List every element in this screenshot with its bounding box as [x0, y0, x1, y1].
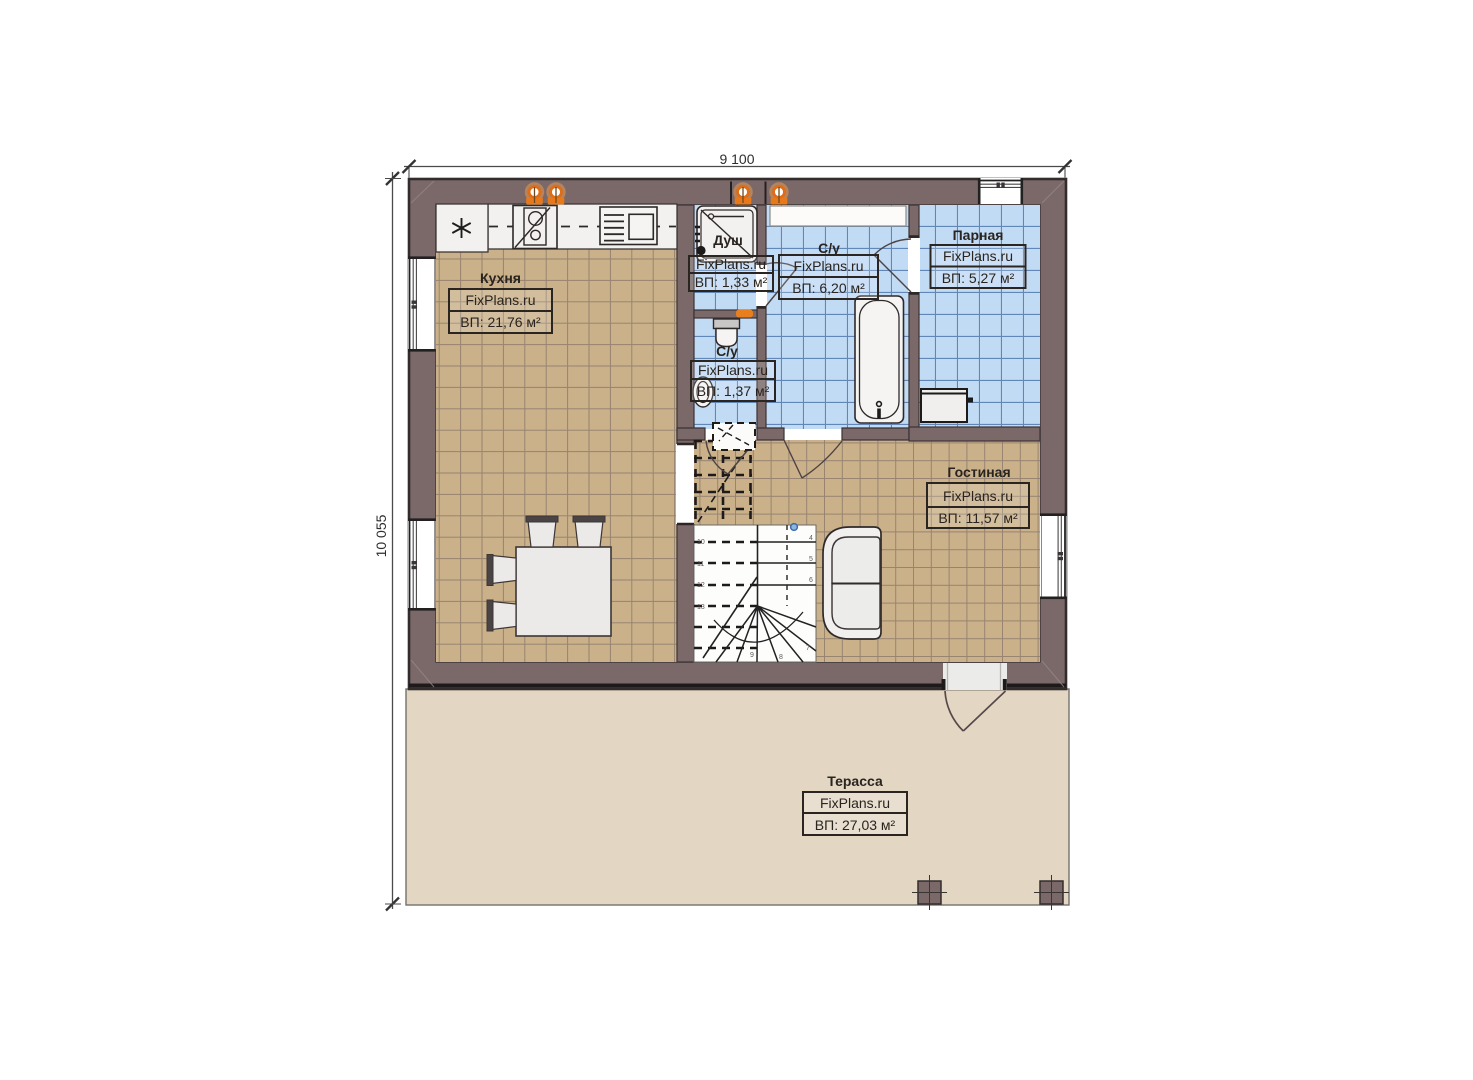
- svg-text:FixPlans.ru: FixPlans.ru: [943, 248, 1013, 264]
- svg-text:10 055: 10 055: [373, 514, 389, 557]
- svg-text:9: 9: [750, 652, 754, 659]
- svg-text:4: 4: [809, 535, 813, 542]
- svg-text:5: 5: [809, 556, 813, 563]
- svg-text:ВП: 1,33 м²: ВП: 1,33 м²: [695, 274, 768, 290]
- svg-text:С/у: С/у: [716, 343, 738, 359]
- svg-text:ВП: 27,03 м²: ВП: 27,03 м²: [815, 817, 896, 833]
- svg-text:ВП: 6,20 м²: ВП: 6,20 м²: [792, 280, 865, 296]
- svg-text:Кухня: Кухня: [480, 270, 521, 286]
- svg-text:FixPlans.ru: FixPlans.ru: [698, 362, 768, 378]
- svg-text:FixPlans.ru: FixPlans.ru: [943, 488, 1013, 504]
- svg-text:FixPlans.ru: FixPlans.ru: [465, 292, 535, 308]
- svg-text:ВП: 21,76 м²: ВП: 21,76 м²: [460, 314, 541, 330]
- svg-text:ВП: 1,37 м²: ВП: 1,37 м²: [697, 383, 770, 399]
- svg-text:7: 7: [806, 645, 810, 652]
- svg-text:12: 12: [697, 582, 705, 589]
- svg-text:9 100: 9 100: [719, 151, 754, 167]
- svg-text:Парная: Парная: [953, 227, 1004, 243]
- svg-text:10: 10: [697, 539, 705, 546]
- svg-text:ВП: 5,27 м²: ВП: 5,27 м²: [942, 270, 1015, 286]
- svg-text:ВП: 11,57 м²: ВП: 11,57 м²: [938, 510, 1018, 526]
- svg-text:6: 6: [809, 577, 813, 584]
- svg-text:13: 13: [697, 604, 705, 611]
- svg-text:Гостиная: Гостиная: [947, 464, 1010, 480]
- svg-text:Душ: Душ: [713, 232, 743, 248]
- svg-text:Терасса: Терасса: [827, 773, 883, 789]
- svg-text:FixPlans.ru: FixPlans.ru: [820, 795, 890, 811]
- svg-text:С/у: С/у: [818, 240, 840, 256]
- svg-text:FixPlans.ru: FixPlans.ru: [793, 258, 863, 274]
- svg-text:8: 8: [779, 654, 783, 661]
- svg-text:11: 11: [697, 561, 704, 568]
- svg-text:FixPlans.ru: FixPlans.ru: [696, 256, 766, 272]
